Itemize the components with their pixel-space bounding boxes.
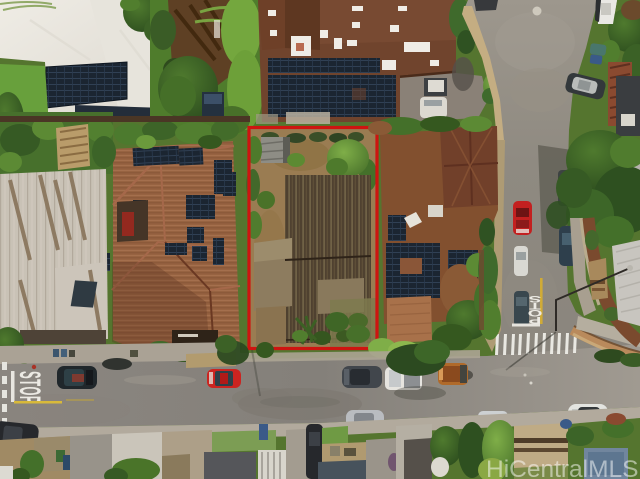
svg-text:HiCentralMLS: HiCentralMLS xyxy=(486,456,639,479)
svg-text:STOP: STOP xyxy=(13,371,46,404)
svg-text:P: P xyxy=(529,315,542,325)
